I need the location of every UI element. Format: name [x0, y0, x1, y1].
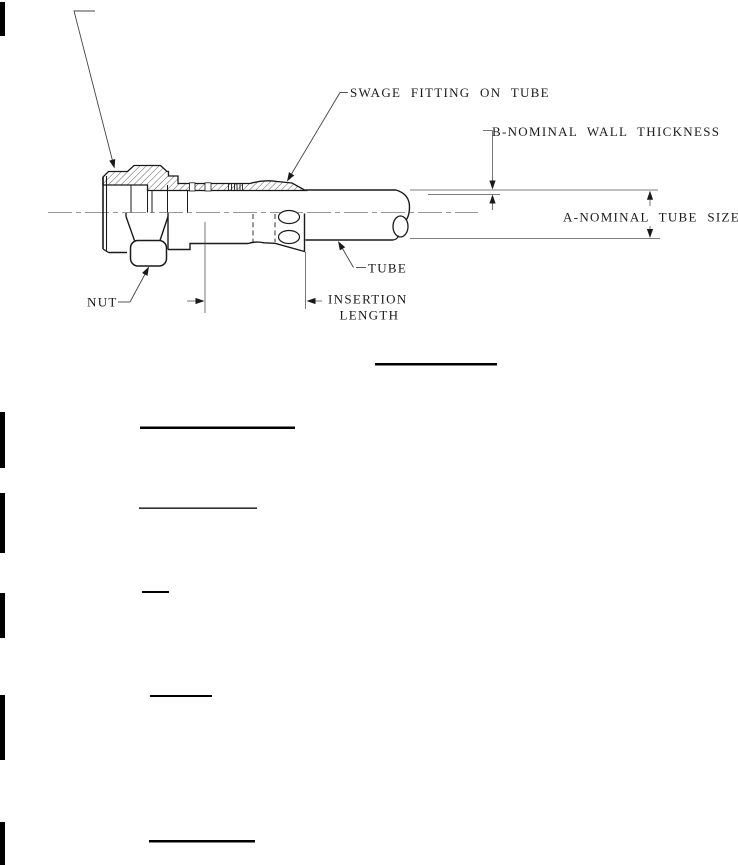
fitting-section-top: [103, 166, 306, 213]
insertion-length-label-line2: LENGTH: [340, 308, 400, 323]
sleeve-slot: [190, 183, 196, 191]
tube-label: TUBE: [368, 261, 407, 276]
tube-bore-ellipse: [393, 216, 408, 237]
change-bar: [0, 695, 5, 760]
heading-rule: [150, 695, 212, 697]
leader-top-left: [74, 11, 114, 165]
change-bar: [0, 2, 5, 36]
wall-thickness-label: B-NOMINAL WALL THICKNESS: [492, 124, 720, 139]
nut-hex-flat: [131, 241, 167, 267]
section-hatched-body: [103, 166, 306, 191]
arrowheads: [109, 159, 653, 304]
fitting-figure: SWAGE FITTING ON TUBE B-NOMINAL WALL THI…: [0, 0, 738, 865]
sleeve-slot: [205, 183, 211, 191]
nut-label: NUT: [87, 295, 118, 310]
heading-rule: [142, 591, 169, 593]
tube-size-label: A-NOMINAL TUBE SIZE: [563, 210, 738, 225]
document-page: SWAGE FITTING ON TUBE B-NOMINAL WALL THI…: [0, 0, 738, 865]
insertion-length-label-line1: INSERTION: [328, 292, 408, 307]
heading-rule: [140, 427, 295, 430]
change-bar: [0, 593, 5, 638]
heading-rule: [149, 840, 255, 843]
swage-fitting-label: SWAGE FITTING ON TUBE: [350, 85, 550, 100]
change-bar: [0, 493, 5, 553]
heading-rules: [139, 363, 497, 843]
change-bar: [0, 822, 5, 865]
heading-rule: [375, 363, 497, 366]
swage-dimple: [279, 211, 300, 224]
tube-drawing: [306, 190, 410, 240]
heading-rule: [139, 508, 257, 509]
change-bars: [0, 2, 5, 865]
leader-lines: [74, 11, 366, 302]
change-bar: [0, 412, 5, 468]
swage-dimple: [279, 231, 300, 244]
